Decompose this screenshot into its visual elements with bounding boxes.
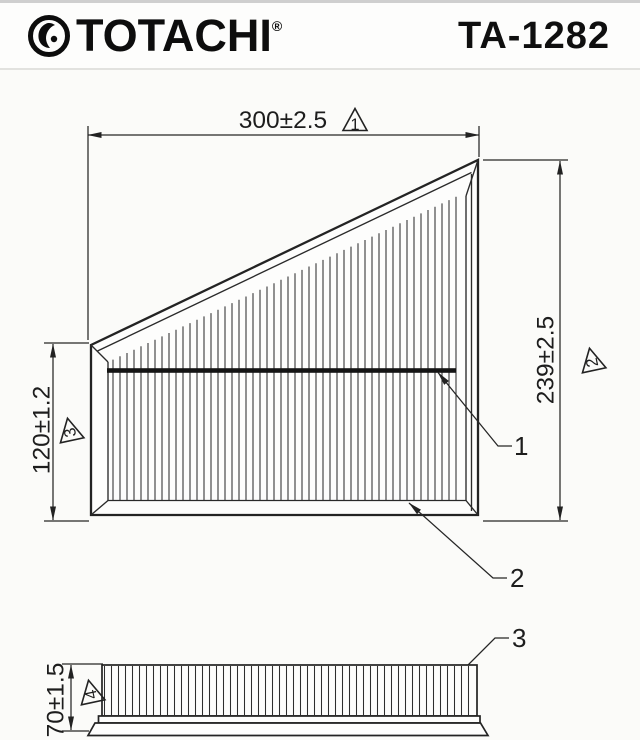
brand-wordmark: TOTACHI®	[76, 13, 282, 58]
triangle-number: 2	[583, 356, 603, 369]
brand: TOTACHI®	[27, 13, 282, 58]
revision-triangle-1: 1	[343, 109, 367, 135]
dimension-text: 300±2.5	[239, 107, 327, 134]
dim-left-height: 120±1.2 3	[29, 343, 90, 521]
brand-name: TOTACHI	[76, 10, 272, 61]
registered-mark: ®	[272, 18, 282, 34]
triangle-number: 3	[61, 426, 81, 439]
dim-height: 239±2.5 2	[483, 160, 606, 521]
triangle-number: 4	[82, 688, 102, 701]
dimension-text: 70±1.5	[43, 663, 70, 738]
filter-outer-outline	[91, 160, 478, 515]
part-number: TA-1282	[458, 17, 610, 55]
logo-drop-shape	[38, 22, 55, 47]
dimension-text: 120±1.2	[29, 386, 56, 474]
callout-number: 1	[514, 431, 528, 461]
filter-top-view	[91, 160, 478, 515]
page: TOTACHI® TA-1282 300±2.5	[0, 0, 640, 740]
triangle-number: 1	[350, 116, 359, 134]
callout-number: 2	[510, 563, 524, 593]
filter-side-view	[88, 665, 488, 736]
logo-dot	[51, 35, 57, 41]
header: TOTACHI® TA-1282	[0, 3, 640, 70]
technical-drawing: 300±2.5 1 239±2.5 2 120±1.2	[0, 0, 640, 740]
revision-triangle-4: 4	[77, 678, 105, 705]
revision-triangle-3: 3	[56, 416, 84, 443]
pleat-block-outline	[102, 665, 477, 716]
seal-band	[99, 716, 481, 723]
totachi-logo-icon	[27, 14, 71, 58]
support-rib-bar	[107, 368, 456, 373]
dimension-text: 239±2.5	[533, 316, 560, 404]
base-seal	[88, 723, 488, 736]
callout-frame: 2	[409, 503, 524, 593]
revision-triangle-2: 2	[578, 346, 606, 373]
callout-number: 3	[512, 623, 526, 653]
